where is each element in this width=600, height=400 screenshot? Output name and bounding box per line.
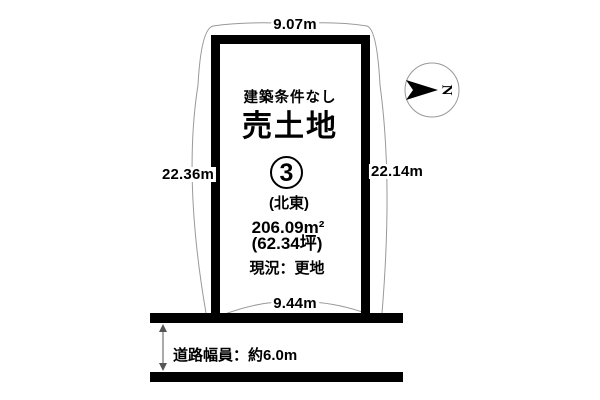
dimension-label-left: 22.36m — [160, 167, 216, 182]
orientation-label: (北東) — [269, 196, 309, 211]
dimension-label-top: 9.07m — [271, 17, 319, 32]
dimension-label-bottom: 9.44m — [271, 296, 319, 311]
road-width-label: 道路幅員：約6.0m — [173, 348, 297, 363]
lot-number: 3 — [280, 159, 294, 187]
status-label: 現況：更地 — [249, 261, 324, 276]
condition-label: 建築条件なし — [244, 91, 337, 106]
road-edge-far — [150, 372, 403, 382]
sale-title: 売土地 — [242, 112, 338, 142]
area-tsubo-label: (62.34坪) — [252, 235, 323, 252]
north-letter: N — [439, 85, 454, 96]
land-plot-diagram: 9.07m 22.36m 22.14m 9.44m 建築条件なし 売土地 3 (… — [0, 0, 600, 400]
dimension-label-right: 22.14m — [369, 164, 425, 179]
road-edge-near — [150, 313, 403, 323]
lot-number-badge: 3 — [270, 156, 303, 189]
road-width-arrow — [159, 324, 167, 371]
